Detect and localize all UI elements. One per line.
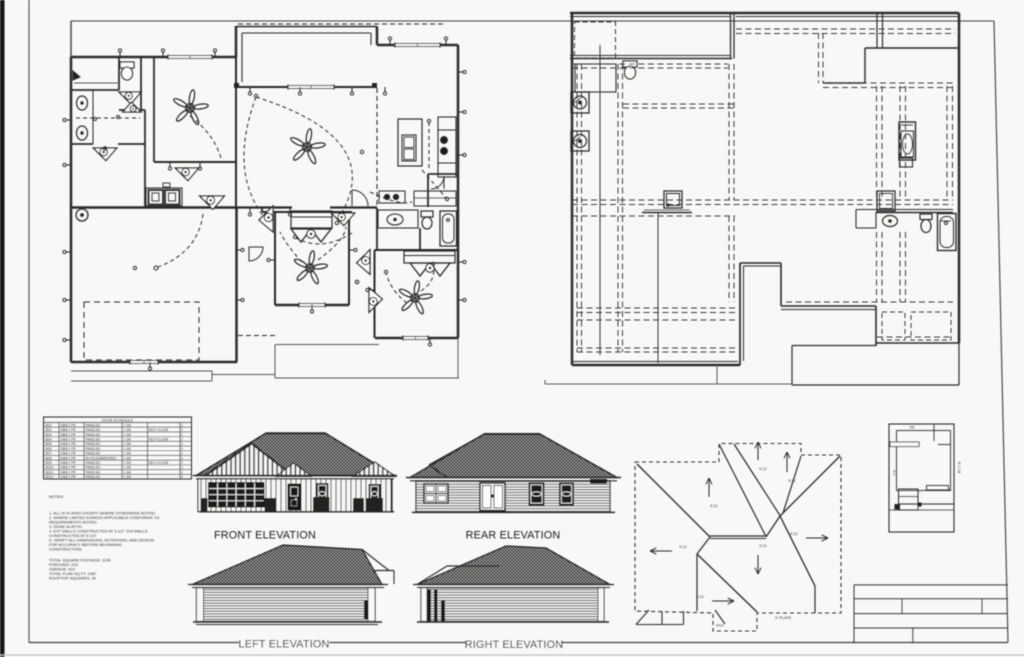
svg-text:2468 1 PR: 2468 1 PR bbox=[61, 461, 77, 465]
svg-text:1 3/8: 1 3/8 bbox=[124, 428, 131, 432]
svg-text:1 3/8: 1 3/8 bbox=[124, 452, 131, 456]
svg-text:PANELED: PANELED bbox=[86, 428, 101, 432]
svg-text:BD9: BD9 bbox=[46, 461, 52, 465]
svg-text:BD7: BD7 bbox=[46, 452, 52, 456]
svg-text:5:12: 5:12 bbox=[679, 545, 686, 549]
svg-text:PANELED: PANELED bbox=[86, 433, 101, 437]
svg-text:1 3/8: 1 3/8 bbox=[124, 470, 131, 474]
svg-text:2868 1 PR: 2868 1 PR bbox=[61, 447, 77, 451]
svg-text:RIGHT ELEVATION: RIGHT ELEVATION bbox=[465, 639, 563, 651]
svg-text:2666 1 PR: 2666 1 PR bbox=[61, 428, 77, 432]
svg-text:5:12: 5:12 bbox=[696, 595, 703, 599]
svg-text:BD3: BD3 bbox=[46, 433, 52, 437]
svg-text:BD12: BD12 bbox=[46, 475, 54, 479]
svg-text:2468 1 PR: 2468 1 PR bbox=[61, 442, 77, 446]
svg-text:1 3/8: 1 3/8 bbox=[124, 437, 131, 441]
svg-text:2068 1 PR: 2068 1 PR bbox=[61, 437, 77, 441]
svg-text:2: 2 bbox=[181, 423, 183, 427]
svg-text:1 3/8: 1 3/8 bbox=[124, 461, 131, 465]
svg-text:2: 2 bbox=[181, 456, 183, 460]
svg-text:4/12: 4/12 bbox=[716, 623, 725, 628]
svg-text:5:12: 5:12 bbox=[710, 504, 717, 508]
svg-text:BD2: BD2 bbox=[46, 428, 52, 432]
svg-text:LEFT ELEVATION: LEFT ELEVATION bbox=[239, 639, 330, 651]
svg-text:2: 2 bbox=[181, 442, 183, 446]
svg-text:5:12: 5:12 bbox=[788, 479, 795, 483]
svg-text:2868 1 PR: 2868 1 PR bbox=[61, 466, 77, 470]
svg-text:2: 2 bbox=[181, 433, 183, 437]
svg-text:2: 2 bbox=[181, 452, 183, 456]
svg-text:PANELED: PANELED bbox=[86, 475, 101, 479]
svg-text:2: 2 bbox=[181, 466, 183, 470]
svg-text:BD8: BD8 bbox=[46, 456, 52, 460]
svg-text:NOTES:: NOTES: bbox=[49, 494, 64, 499]
svg-text:5:12: 5:12 bbox=[790, 532, 797, 536]
svg-text:2668 1 PR: 2668 1 PR bbox=[61, 470, 77, 474]
svg-text:5:12: 5:12 bbox=[759, 544, 766, 548]
svg-text:2468 1 PR: 2468 1 PR bbox=[61, 475, 77, 479]
svg-text:2068 1 PR: 2068 1 PR bbox=[61, 452, 77, 456]
svg-text:2: 2 bbox=[181, 461, 183, 465]
svg-text:BD11: BD11 bbox=[46, 470, 54, 474]
svg-text:2: 2 bbox=[181, 437, 183, 441]
svg-text:1 3/8: 1 3/8 bbox=[124, 447, 131, 451]
svg-text:5/8: 5/8 bbox=[910, 426, 915, 430]
svg-text:2: 2 bbox=[181, 470, 183, 474]
svg-text:DOOR SCHEDULE: DOOR SCHEDULE bbox=[102, 418, 134, 422]
svg-text:9' PLATE: 9' PLATE bbox=[775, 615, 792, 620]
svg-text:1 3/8: 1 3/8 bbox=[124, 433, 131, 437]
svg-text:SELF-CLOSE: SELF-CLOSE bbox=[149, 461, 169, 465]
svg-text:8'-1 1/8: 8'-1 1/8 bbox=[957, 462, 961, 473]
svg-text:5:12: 5:12 bbox=[759, 467, 766, 471]
svg-text:FRONT ELEVATION: FRONT ELEVATION bbox=[214, 530, 316, 542]
svg-text:CONSTRUCTION.: CONSTRUCTION. bbox=[49, 547, 82, 552]
svg-text:BD5: BD5 bbox=[46, 442, 52, 446]
svg-text:PANELED: PANELED bbox=[86, 466, 101, 470]
svg-text:5068 1 PR: 5068 1 PR bbox=[61, 456, 77, 460]
svg-text:1 3/8: 1 3/8 bbox=[124, 423, 131, 427]
svg-text:2: 2 bbox=[181, 447, 183, 451]
svg-text:2: 2 bbox=[181, 428, 183, 432]
svg-text:1 3/8: 1 3/8 bbox=[124, 456, 131, 460]
svg-text:SELF-CLOSE: SELF-CLOSE bbox=[149, 437, 169, 441]
svg-text:BD6: BD6 bbox=[46, 447, 52, 451]
svg-text:REAR ELEVATION: REAR ELEVATION bbox=[466, 530, 561, 542]
svg-text:PANELED: PANELED bbox=[86, 442, 101, 446]
svg-text:ROOFTOP SQUARES: 34: ROOFTOP SQUARES: 34 bbox=[49, 576, 97, 581]
svg-text:9'-0: 9'-0 bbox=[892, 470, 896, 476]
svg-text:2868 1 PR: 2868 1 PR bbox=[61, 433, 77, 437]
svg-text:PANELED: PANELED bbox=[86, 452, 101, 456]
svg-text:1 3/8: 1 3/8 bbox=[124, 475, 131, 479]
svg-text:PANELED: PANELED bbox=[86, 447, 101, 451]
svg-text:BD4: BD4 bbox=[46, 437, 52, 441]
svg-text:SELF-CLOSE: SELF-CLOSE bbox=[149, 428, 169, 432]
svg-text:2868 1 PR: 2868 1 PR bbox=[61, 423, 77, 427]
svg-text:BD10: BD10 bbox=[46, 466, 54, 470]
svg-text:PANELED: PANELED bbox=[86, 470, 101, 474]
svg-text:BD1: BD1 bbox=[46, 423, 52, 427]
svg-text:PANELED: PANELED bbox=[86, 461, 101, 465]
svg-text:1 3/8: 1 3/8 bbox=[124, 442, 131, 446]
svg-text:PANELED: PANELED bbox=[86, 423, 101, 427]
svg-text:PANELED: PANELED bbox=[86, 437, 101, 441]
svg-text:BI-FOLD/MIRRORED: BI-FOLD/MIRRORED bbox=[86, 456, 118, 460]
svg-text:1 3/8: 1 3/8 bbox=[124, 466, 131, 470]
svg-text:2: 2 bbox=[181, 475, 183, 479]
